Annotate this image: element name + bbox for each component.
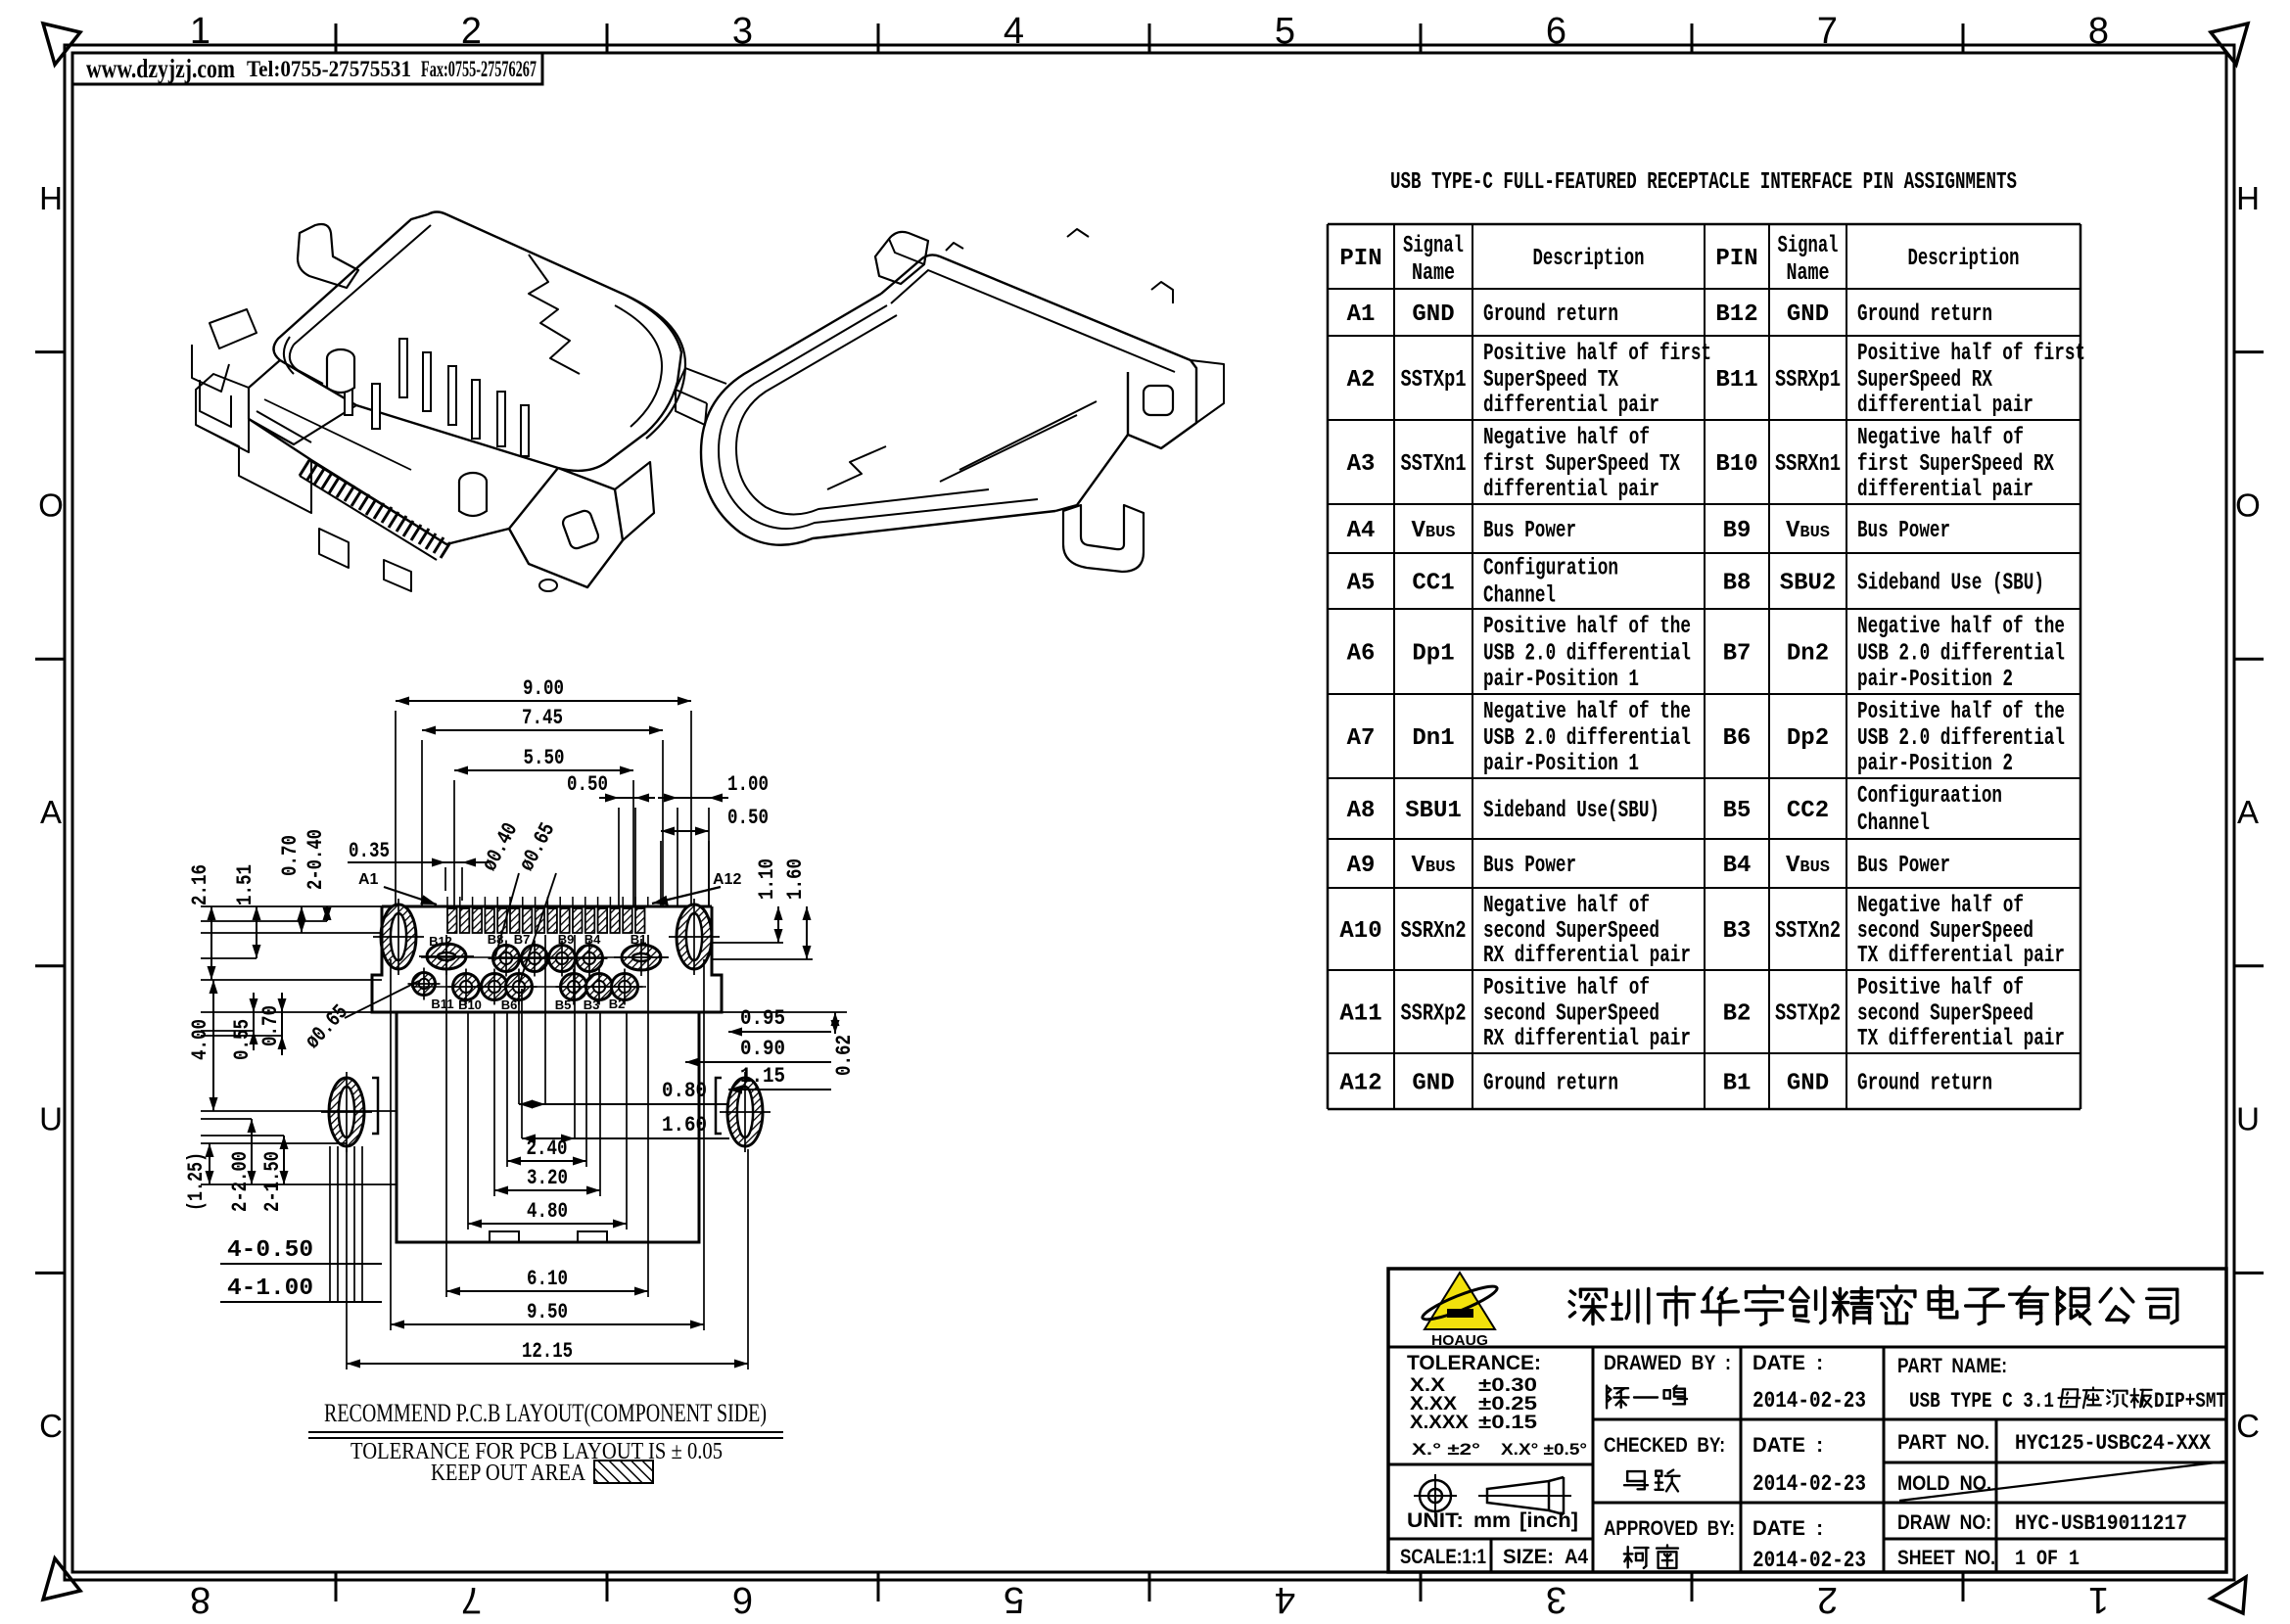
svg-text:A: A xyxy=(2237,794,2259,830)
svg-text:Name: Name xyxy=(1412,260,1455,287)
svg-text:Ground return: Ground return xyxy=(1857,1071,1992,1097)
svg-text:9.00: 9.00 xyxy=(523,676,564,701)
svg-text:6: 6 xyxy=(732,1579,753,1619)
svg-text:A6: A6 xyxy=(1347,641,1376,668)
svg-text:B2: B2 xyxy=(609,997,626,1011)
svg-text:Dn2: Dn2 xyxy=(1787,641,1829,668)
svg-text:Fax:0755-27576267: Fax:0755-27576267 xyxy=(421,57,537,81)
svg-text:TX differential pair: TX differential pair xyxy=(1857,1026,2065,1052)
svg-text:Ground return: Ground return xyxy=(1483,302,1618,328)
svg-text:6: 6 xyxy=(1546,11,1566,52)
svg-text:RX differential pair: RX differential pair xyxy=(1483,1026,1691,1052)
svg-text:C: C xyxy=(2236,1408,2260,1444)
svg-text:PART NO.: PART NO. xyxy=(1897,1431,1989,1454)
svg-text:B1: B1 xyxy=(1723,1071,1752,1097)
svg-text:USB 2.0 differential: USB 2.0 differential xyxy=(1483,641,1691,668)
svg-text:B11: B11 xyxy=(1715,367,1757,394)
svg-text:pair-Position 1: pair-Position 1 xyxy=(1483,751,1639,777)
svg-text:B4: B4 xyxy=(1723,853,1752,879)
svg-text:2014-02-23: 2014-02-23 xyxy=(1753,1471,1866,1497)
svg-text:±0.15: ±0.15 xyxy=(1478,1413,1538,1433)
svg-text:second SuperSpeed: second SuperSpeed xyxy=(1483,918,1659,945)
svg-text:USB TYPE-C FULL-FEATURED RECEP: USB TYPE-C FULL-FEATURED RECEPTACLE INTE… xyxy=(1390,169,2017,196)
svg-text:Negative half of the: Negative half of the xyxy=(1483,699,1691,725)
svg-text:DATE :: DATE : xyxy=(1753,1517,1823,1540)
svg-text:APPROVED BY:: APPROVED BY: xyxy=(1604,1517,1735,1540)
svg-text:pair-Position 2: pair-Position 2 xyxy=(1857,751,2013,777)
svg-text:USB 2.0 differential: USB 2.0 differential xyxy=(1857,641,2065,668)
svg-text:±0.25: ±0.25 xyxy=(1478,1394,1538,1415)
svg-text:0.50: 0.50 xyxy=(727,806,769,830)
svg-text:Bus Power: Bus Power xyxy=(1483,518,1576,544)
svg-text:UNIT:: UNIT: xyxy=(1407,1509,1464,1532)
svg-text:GND: GND xyxy=(1787,1071,1829,1097)
svg-text:4: 4 xyxy=(1004,11,1024,52)
svg-text:9.50: 9.50 xyxy=(527,1300,568,1324)
svg-text:A8: A8 xyxy=(1347,798,1376,824)
svg-text:1.15: 1.15 xyxy=(740,1064,785,1089)
svg-text:±0.30: ±0.30 xyxy=(1478,1375,1537,1396)
svg-text:DATE :: DATE : xyxy=(1753,1434,1823,1457)
svg-text:DRAW NO:: DRAW NO: xyxy=(1897,1511,1991,1534)
svg-text:www.dzyjzj.com: www.dzyjzj.com xyxy=(86,54,235,83)
svg-text:SSTXp1: SSTXp1 xyxy=(1401,367,1467,394)
svg-text:B3: B3 xyxy=(584,998,600,1012)
svg-text:Positive half of the: Positive half of the xyxy=(1483,614,1691,640)
svg-text:1.60: 1.60 xyxy=(783,858,808,900)
svg-text:5: 5 xyxy=(1004,1579,1024,1619)
svg-text:SBU1: SBU1 xyxy=(1405,798,1462,824)
svg-text:Signal: Signal xyxy=(1778,233,1839,259)
svg-text:[inch]: [inch] xyxy=(1519,1509,1578,1532)
svg-text:4-0.50: 4-0.50 xyxy=(227,1237,313,1264)
svg-text:GND: GND xyxy=(1412,302,1454,328)
svg-text:1.60: 1.60 xyxy=(662,1113,707,1137)
svg-text:H: H xyxy=(39,180,63,216)
svg-text:4-1.00: 4-1.00 xyxy=(227,1276,313,1302)
svg-text:2-2.00: 2-2.00 xyxy=(228,1151,253,1212)
svg-text:Sideband Use (SBU): Sideband Use (SBU) xyxy=(1857,571,2044,597)
svg-text:B8: B8 xyxy=(1723,571,1752,597)
svg-text:B10: B10 xyxy=(458,998,482,1012)
svg-text:X.XX: X.XX xyxy=(1410,1394,1457,1415)
svg-text:differential pair: differential pair xyxy=(1857,393,2033,419)
svg-text:4.80: 4.80 xyxy=(527,1199,568,1224)
svg-text:mm: mm xyxy=(1473,1509,1511,1532)
svg-text:2.16: 2.16 xyxy=(188,864,212,905)
svg-text:A4: A4 xyxy=(1347,518,1376,544)
svg-text:4.00: 4.00 xyxy=(188,1019,212,1060)
svg-text:A1: A1 xyxy=(1347,302,1376,328)
svg-text:Positive half of the: Positive half of the xyxy=(1857,699,2065,725)
svg-text:USB 2.0 differential: USB 2.0 differential xyxy=(1857,725,2065,752)
svg-text:Channel: Channel xyxy=(1857,811,1930,837)
svg-text:B12: B12 xyxy=(1715,302,1757,328)
svg-text:Dp2: Dp2 xyxy=(1787,725,1829,752)
svg-text:KEEP OUT AREA: KEEP OUT AREA xyxy=(431,1461,586,1486)
svg-text:0.35: 0.35 xyxy=(349,839,390,863)
svg-text:SSTXp2: SSTXp2 xyxy=(1775,1001,1841,1028)
svg-text:Negative half of: Negative half of xyxy=(1483,425,1650,451)
svg-text:GND: GND xyxy=(1412,1071,1454,1097)
svg-text:3: 3 xyxy=(732,11,753,52)
svg-text:1.00: 1.00 xyxy=(727,772,769,797)
svg-text:Negative half of: Negative half of xyxy=(1483,893,1650,919)
svg-text:RX differential pair: RX differential pair xyxy=(1483,943,1691,969)
svg-text:12.15: 12.15 xyxy=(522,1339,573,1364)
svg-text:B6: B6 xyxy=(1723,725,1752,752)
svg-text:A: A xyxy=(40,794,62,830)
svg-text:0.70: 0.70 xyxy=(258,1005,283,1046)
svg-text:B6: B6 xyxy=(501,998,518,1012)
svg-text:B12: B12 xyxy=(429,934,452,949)
svg-text:O: O xyxy=(2235,487,2261,523)
svg-text:2014-02-23: 2014-02-23 xyxy=(1753,1388,1866,1414)
svg-text:SHEET NO.: SHEET NO. xyxy=(1897,1547,1995,1569)
svg-text:B7: B7 xyxy=(514,932,531,947)
svg-text:8: 8 xyxy=(190,1579,210,1619)
svg-text:1.10: 1.10 xyxy=(755,858,779,900)
svg-text:DATE :: DATE : xyxy=(1753,1352,1823,1374)
svg-text:HYC125-USBC24-XXX: HYC125-USBC24-XXX xyxy=(2015,1431,2212,1456)
svg-text:A11: A11 xyxy=(1339,1001,1381,1028)
svg-text:Signal: Signal xyxy=(1403,233,1464,259)
svg-text:7: 7 xyxy=(461,1579,482,1619)
svg-text:3: 3 xyxy=(1546,1579,1566,1619)
svg-text:A7: A7 xyxy=(1347,725,1376,752)
svg-text:0.90: 0.90 xyxy=(740,1037,785,1061)
svg-text:0.95: 0.95 xyxy=(740,1006,785,1031)
svg-text:X.X: X.X xyxy=(1410,1375,1445,1396)
svg-text:Bus Power: Bus Power xyxy=(1857,518,1950,544)
svg-text:A2: A2 xyxy=(1347,367,1376,394)
svg-text:A10: A10 xyxy=(1339,918,1381,945)
svg-text:X.XXX: X.XXX xyxy=(1410,1413,1469,1433)
svg-text:4: 4 xyxy=(1275,1579,1295,1619)
svg-text:0.80: 0.80 xyxy=(662,1079,707,1103)
svg-text:pair-Position 2: pair-Position 2 xyxy=(1857,667,2013,693)
svg-text:Negative half of: Negative half of xyxy=(1857,425,2024,451)
svg-text:1: 1 xyxy=(2088,1579,2109,1619)
svg-text:B1: B1 xyxy=(631,932,647,947)
svg-text:HYC-USB19011217: HYC-USB19011217 xyxy=(2015,1511,2187,1536)
svg-text:SSRXp2: SSRXp2 xyxy=(1401,1001,1467,1028)
svg-text:differential pair: differential pair xyxy=(1483,477,1659,503)
svg-text:A5: A5 xyxy=(1347,571,1376,597)
svg-text:6.10: 6.10 xyxy=(527,1267,568,1291)
svg-text:(1.25): (1.25) xyxy=(184,1152,209,1211)
svg-text:A3: A3 xyxy=(1347,451,1376,478)
svg-text:Dp1: Dp1 xyxy=(1412,641,1454,668)
svg-text:A4: A4 xyxy=(1565,1546,1588,1568)
svg-text:first SuperSpeed RX: first SuperSpeed RX xyxy=(1857,451,2054,478)
svg-text:Positive half of first: Positive half of first xyxy=(1857,341,2085,367)
svg-text:PIN: PIN xyxy=(1339,246,1381,272)
svg-text:X.° ±2°: X.° ±2° xyxy=(1412,1440,1480,1459)
svg-text:B2: B2 xyxy=(1723,1001,1752,1028)
svg-text:7: 7 xyxy=(1817,11,1838,52)
svg-text:Channel: Channel xyxy=(1483,583,1556,610)
svg-text:SIZE:: SIZE: xyxy=(1503,1546,1554,1568)
svg-text:1: 1 xyxy=(190,11,210,52)
svg-text:B10: B10 xyxy=(1715,451,1757,478)
svg-text:SSRXn2: SSRXn2 xyxy=(1401,918,1467,945)
svg-text:0.70: 0.70 xyxy=(278,835,303,876)
svg-text:3.20: 3.20 xyxy=(527,1166,568,1190)
svg-text:C: C xyxy=(39,1408,63,1444)
svg-text:CC1: CC1 xyxy=(1412,571,1454,597)
svg-text:SSRXp1: SSRXp1 xyxy=(1775,367,1841,394)
svg-text:Description: Description xyxy=(1533,246,1645,272)
svg-text:SBU2: SBU2 xyxy=(1780,571,1837,597)
svg-text:O: O xyxy=(38,487,64,523)
svg-text:Positive half of: Positive half of xyxy=(1857,975,2024,1001)
svg-text:U: U xyxy=(2236,1101,2260,1137)
svg-text:2-0.40: 2-0.40 xyxy=(304,829,328,890)
svg-text:RECOMMEND P.C.B LAYOUT(COMPONE: RECOMMEND P.C.B LAYOUT(COMPONENT SIDE) xyxy=(324,1399,767,1427)
svg-text:B5: B5 xyxy=(1723,798,1752,824)
svg-text:A12: A12 xyxy=(713,871,741,888)
svg-text:B11: B11 xyxy=(431,997,453,1011)
svg-text:Configuration: Configuration xyxy=(1483,556,1618,582)
svg-text:SCALE:1:1: SCALE:1:1 xyxy=(1400,1546,1486,1568)
svg-text:B7: B7 xyxy=(1723,641,1752,668)
svg-text:MOLD NO.: MOLD NO. xyxy=(1897,1472,1991,1495)
svg-text:2: 2 xyxy=(461,11,482,52)
svg-text:first SuperSpeed TX: first SuperSpeed TX xyxy=(1483,451,1680,478)
svg-text:DRAWED BY :: DRAWED BY : xyxy=(1604,1352,1731,1374)
svg-text:1 OF 1: 1 OF 1 xyxy=(2015,1547,2080,1571)
svg-text:Negative half of the: Negative half of the xyxy=(1857,614,2065,640)
svg-text:2: 2 xyxy=(1817,1579,1838,1619)
svg-text:H: H xyxy=(2236,180,2260,216)
svg-text:SSRXn1: SSRXn1 xyxy=(1775,451,1841,478)
svg-text:Ground return: Ground return xyxy=(1857,302,1992,328)
svg-text:GND: GND xyxy=(1787,302,1829,328)
svg-text:B4: B4 xyxy=(584,932,601,947)
svg-text:SuperSpeed TX: SuperSpeed TX xyxy=(1483,367,1618,394)
svg-text:B9: B9 xyxy=(1723,518,1752,544)
svg-text:B9: B9 xyxy=(558,932,575,947)
svg-text:7.45: 7.45 xyxy=(522,706,563,730)
svg-text:0.50: 0.50 xyxy=(567,772,608,797)
svg-text:Ground return: Ground return xyxy=(1483,1071,1618,1097)
svg-text:X.X° ±0.5°: X.X° ±0.5° xyxy=(1501,1440,1587,1459)
svg-text:SSTXn1: SSTXn1 xyxy=(1401,451,1467,478)
svg-text:second SuperSpeed: second SuperSpeed xyxy=(1857,918,2033,945)
svg-text:second SuperSpeed: second SuperSpeed xyxy=(1483,1001,1659,1028)
svg-text:8: 8 xyxy=(2088,11,2109,52)
svg-text:A12: A12 xyxy=(1339,1071,1381,1097)
svg-text:Description: Description xyxy=(1908,246,2020,272)
svg-text:TX differential pair: TX differential pair xyxy=(1857,943,2065,969)
svg-text:5: 5 xyxy=(1275,11,1295,52)
svg-text:CHECKED BY:: CHECKED BY: xyxy=(1604,1434,1725,1457)
svg-text:SSTXn2: SSTXn2 xyxy=(1775,918,1841,945)
svg-text:Positive half of first: Positive half of first xyxy=(1483,341,1711,367)
svg-text:pair-Position 1: pair-Position 1 xyxy=(1483,667,1639,693)
svg-text:Sideband Use(SBU): Sideband Use(SBU) xyxy=(1483,798,1659,824)
svg-text:B5: B5 xyxy=(555,998,572,1012)
svg-text:1.51: 1.51 xyxy=(233,864,257,905)
svg-text:U: U xyxy=(39,1101,63,1137)
svg-text:Dn1: Dn1 xyxy=(1412,725,1454,752)
svg-text:DIP+SMT: DIP+SMT xyxy=(2154,1389,2226,1414)
svg-text:Negative half of: Negative half of xyxy=(1857,893,2024,919)
svg-text:PIN: PIN xyxy=(1715,246,1757,272)
svg-text:CC2: CC2 xyxy=(1787,798,1829,824)
svg-text:Bus Power: Bus Power xyxy=(1857,853,1950,879)
svg-text:USB 2.0 differential: USB 2.0 differential xyxy=(1483,725,1691,752)
svg-text:B3: B3 xyxy=(1723,918,1752,945)
svg-text:Positive half of: Positive half of xyxy=(1483,975,1650,1001)
svg-text:A9: A9 xyxy=(1347,853,1376,879)
svg-text:2.40: 2.40 xyxy=(527,1137,568,1161)
svg-text:Configuraation: Configuraation xyxy=(1857,783,2002,810)
svg-text:differential pair: differential pair xyxy=(1483,393,1659,419)
svg-text:5.50: 5.50 xyxy=(524,746,565,770)
svg-text:USB TYPE C 3.1: USB TYPE C 3.1 xyxy=(1909,1389,2054,1414)
svg-text:2014-02-23: 2014-02-23 xyxy=(1753,1548,1866,1573)
svg-text:PART NAME:: PART NAME: xyxy=(1897,1355,2007,1377)
svg-text:SuperSpeed RX: SuperSpeed RX xyxy=(1857,367,1992,394)
svg-text:Bus Power: Bus Power xyxy=(1483,853,1576,879)
svg-text:differential pair: differential pair xyxy=(1857,477,2033,503)
svg-text:HOAUG: HOAUG xyxy=(1431,1332,1488,1349)
svg-text:Name: Name xyxy=(1787,260,1830,287)
svg-text:A1: A1 xyxy=(358,871,379,888)
svg-text:second SuperSpeed: second SuperSpeed xyxy=(1857,1001,2033,1028)
svg-text:0.55: 0.55 xyxy=(230,1019,255,1060)
svg-text:TOLERANCE:: TOLERANCE: xyxy=(1407,1352,1541,1374)
svg-text:2-1.50: 2-1.50 xyxy=(260,1151,285,1212)
svg-text:Tel:0755-27575531: Tel:0755-27575531 xyxy=(247,57,411,81)
svg-text:0.62: 0.62 xyxy=(832,1035,857,1076)
